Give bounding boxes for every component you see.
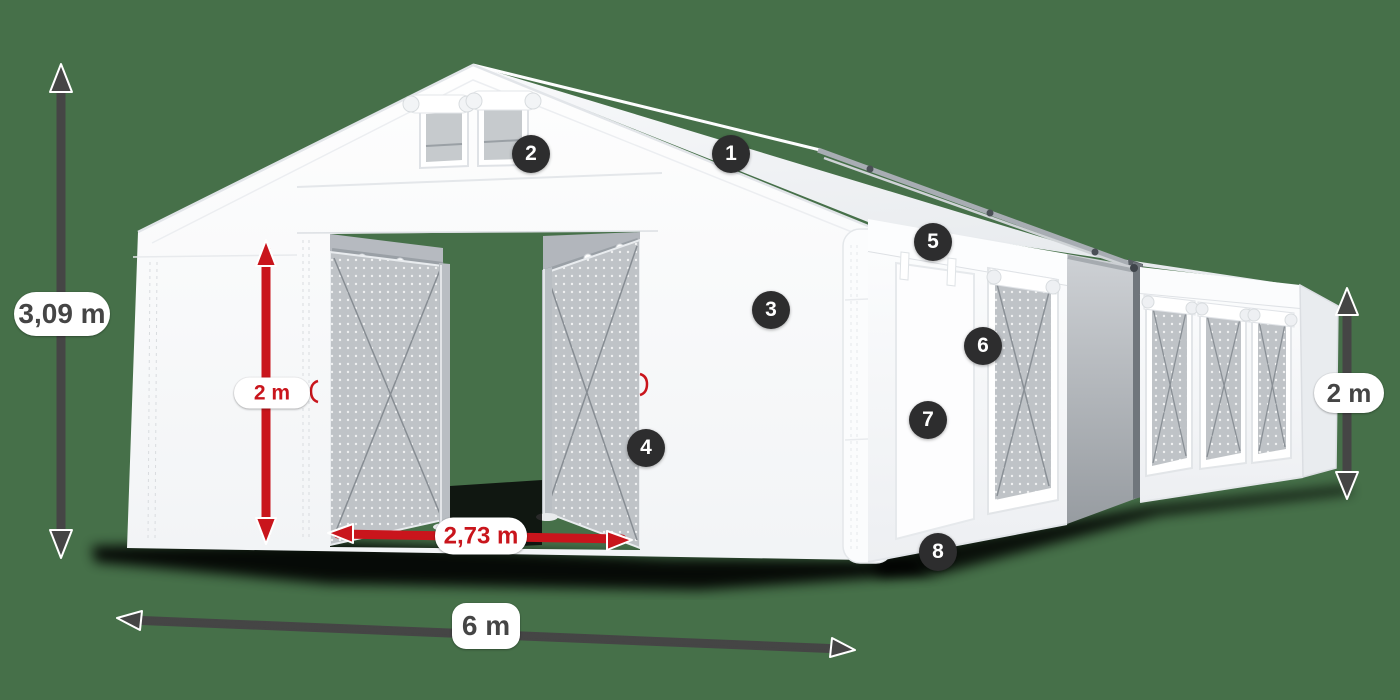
total-height-label: 3,09 m — [14, 292, 110, 336]
product-diagram: 3,09 m 2 m 2,73 m 6 m 2 m 1 2 3 4 5 6 7 … — [0, 0, 1400, 700]
callout-badge-1[interactable]: 1 — [712, 135, 750, 173]
side-height-label: 2 m — [1314, 373, 1384, 413]
callout-badge-4[interactable]: 4 — [627, 429, 665, 467]
callout-badge-7[interactable]: 7 — [909, 401, 947, 439]
dimension-arrows — [0, 0, 1400, 700]
entrance-width-label: 2,73 m — [435, 518, 527, 555]
callout-badge-2[interactable]: 2 — [512, 135, 550, 173]
callout-badge-5[interactable]: 5 — [914, 223, 952, 261]
entrance-height-label: 2 m — [234, 378, 310, 409]
callout-badge-8[interactable]: 8 — [919, 533, 957, 571]
callout-badge-3[interactable]: 3 — [752, 291, 790, 329]
width-label: 6 m — [452, 603, 520, 649]
callout-badge-6[interactable]: 6 — [964, 327, 1002, 365]
